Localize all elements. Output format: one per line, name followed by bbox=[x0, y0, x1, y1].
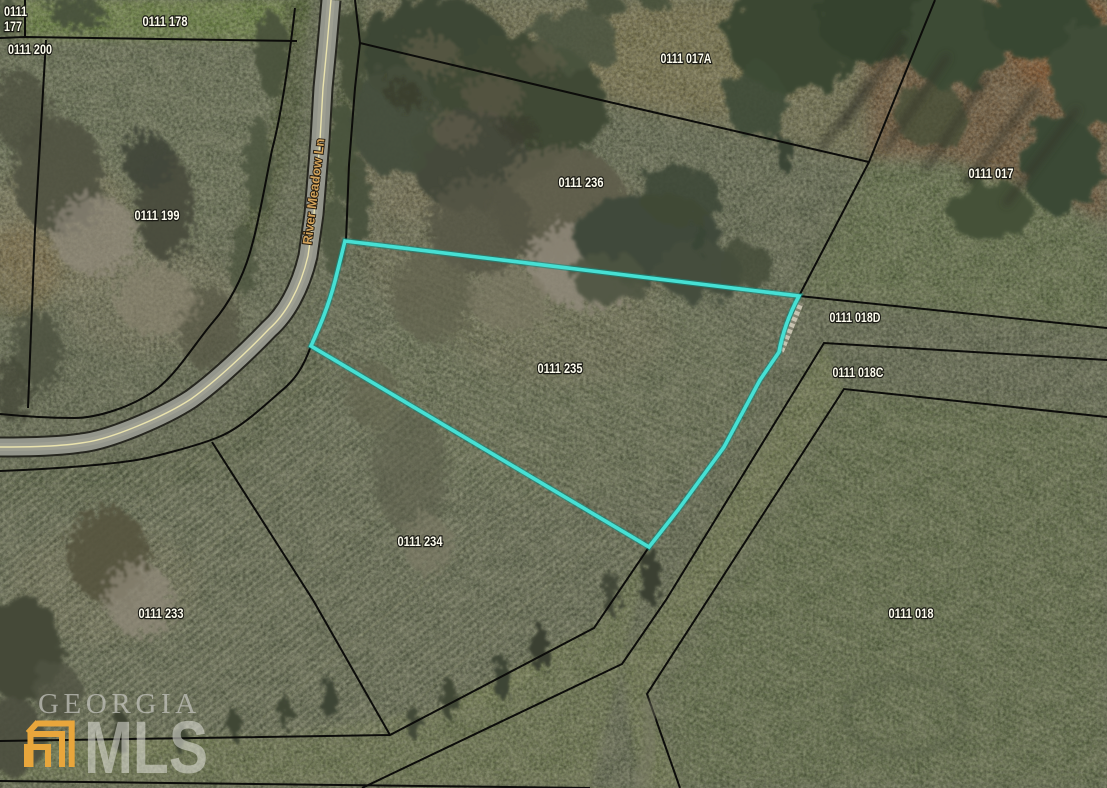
svg-text:0111 200: 0111 200 bbox=[8, 42, 52, 57]
svg-text:0111 236: 0111 236 bbox=[559, 175, 604, 190]
svg-text:0111 018: 0111 018 bbox=[889, 606, 934, 621]
svg-text:0111 018D: 0111 018D bbox=[830, 310, 881, 325]
svg-text:0111: 0111 bbox=[4, 4, 27, 19]
svg-text:177: 177 bbox=[4, 19, 22, 34]
svg-text:0111 178: 0111 178 bbox=[143, 14, 188, 29]
svg-text:0111 017A: 0111 017A bbox=[661, 51, 712, 66]
svg-text:0111 199: 0111 199 bbox=[135, 208, 180, 223]
svg-text:0111 235: 0111 235 bbox=[538, 361, 583, 376]
svg-text:0111 017: 0111 017 bbox=[969, 166, 1014, 181]
svg-text:MLS: MLS bbox=[84, 706, 208, 788]
svg-text:0111 234: 0111 234 bbox=[398, 534, 443, 549]
svg-text:0111 018C: 0111 018C bbox=[833, 365, 884, 380]
svg-text:0111 233: 0111 233 bbox=[139, 606, 184, 621]
